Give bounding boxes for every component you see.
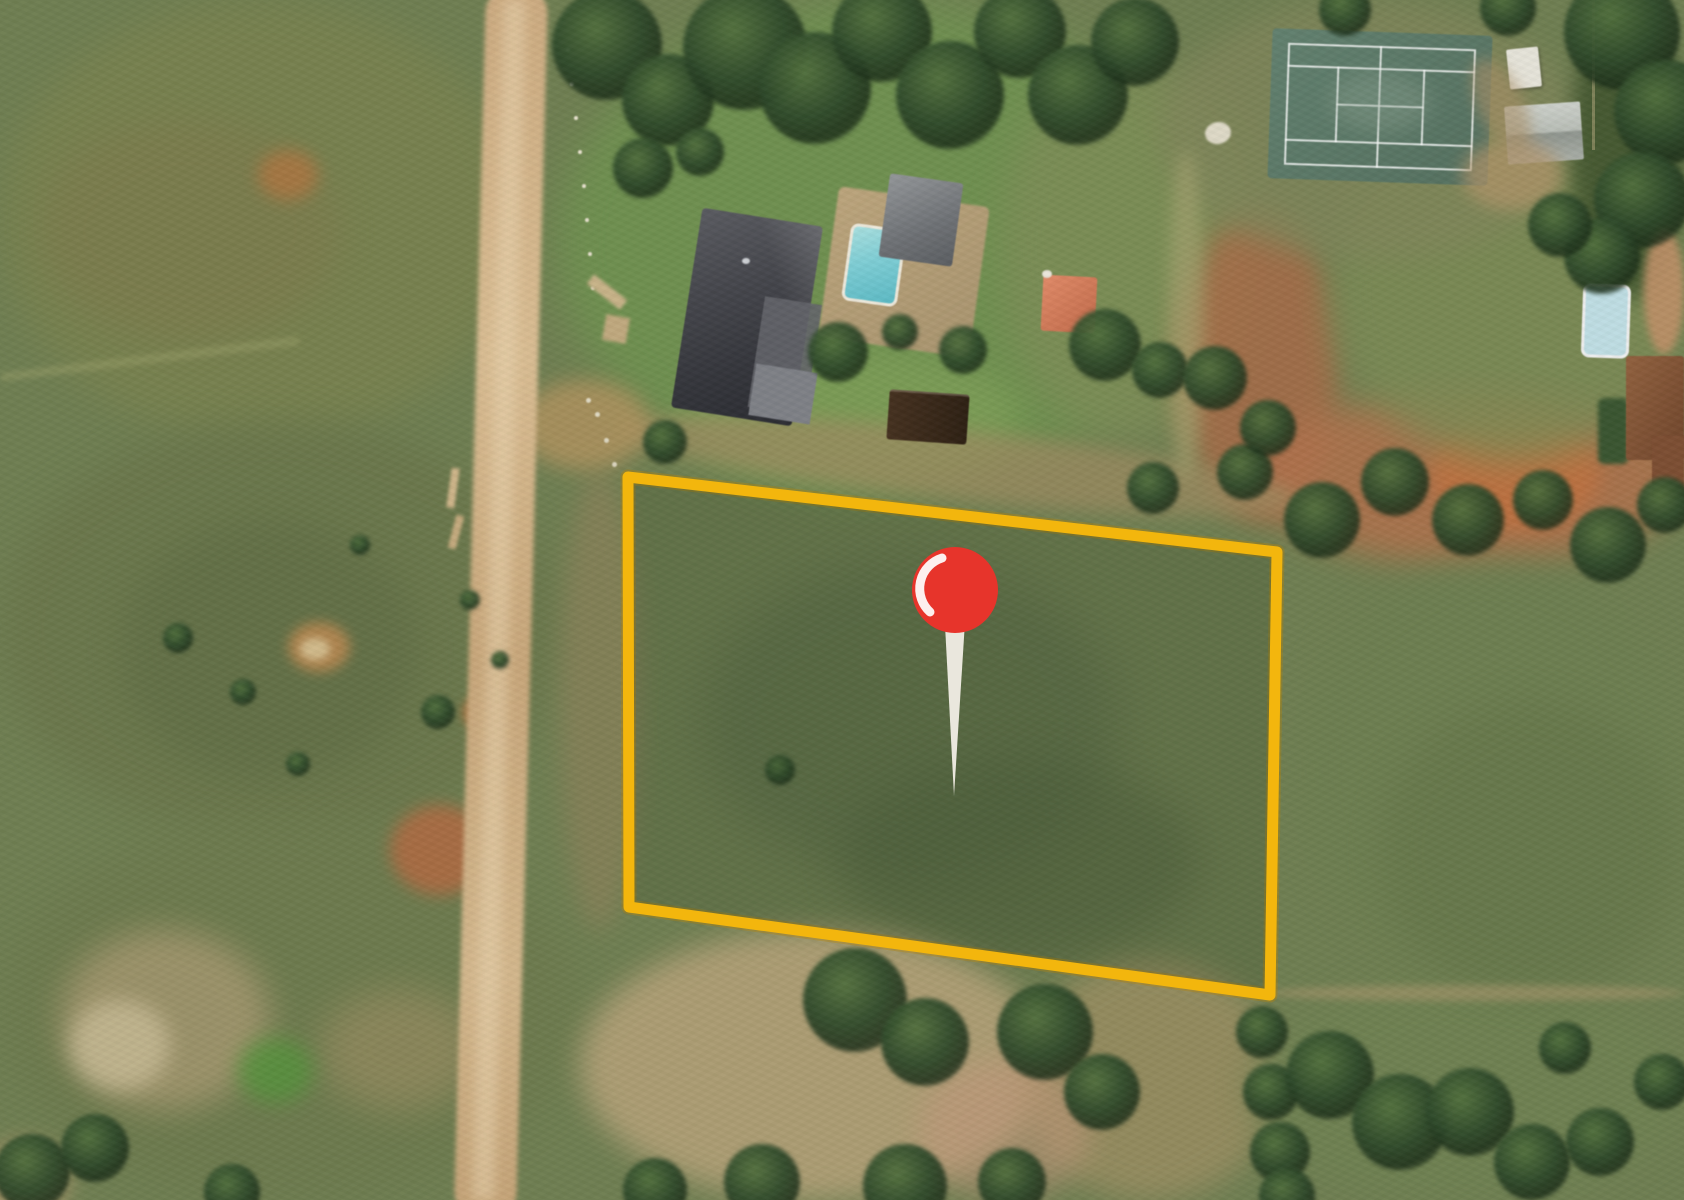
- tree: [939, 326, 987, 374]
- tree: [1183, 346, 1247, 410]
- tree: [1513, 470, 1573, 530]
- tree: [286, 752, 310, 776]
- tree: [1132, 342, 1188, 398]
- tree: [623, 1158, 687, 1200]
- tree: [643, 420, 687, 464]
- tree: [1236, 1006, 1288, 1058]
- tree: [1637, 477, 1684, 533]
- tree: [163, 623, 193, 653]
- tree: [1091, 0, 1179, 86]
- tree: [1566, 1108, 1634, 1176]
- tree: [1494, 1124, 1570, 1200]
- tree: [1361, 448, 1429, 516]
- tree: [421, 695, 455, 729]
- tree: [1319, 0, 1371, 36]
- tree: [765, 755, 795, 785]
- tree: [863, 1144, 947, 1200]
- tree: [491, 651, 509, 669]
- tree: [1570, 507, 1646, 583]
- tree: [881, 998, 969, 1086]
- tree: [1069, 309, 1141, 381]
- tree: [1528, 193, 1592, 257]
- tree: [882, 314, 918, 350]
- tree: [676, 128, 724, 176]
- tree: [1634, 1054, 1684, 1110]
- tree: [613, 138, 673, 198]
- tree: [61, 1114, 129, 1182]
- tree-layer: [0, 0, 1684, 1200]
- tree: [1432, 484, 1504, 556]
- tree: [808, 322, 868, 382]
- tree: [204, 1164, 260, 1200]
- tree: [1539, 1022, 1591, 1074]
- tree: [1284, 482, 1360, 558]
- tree: [230, 679, 256, 705]
- tree: [1127, 462, 1179, 514]
- tree: [0, 1134, 70, 1200]
- tree: [978, 1148, 1046, 1200]
- tree: [724, 1144, 800, 1200]
- tree: [1064, 1054, 1140, 1130]
- tree: [1240, 400, 1296, 456]
- satellite-map[interactable]: [0, 0, 1684, 1200]
- tree: [350, 535, 370, 555]
- tree: [1480, 0, 1536, 36]
- tree: [460, 590, 480, 610]
